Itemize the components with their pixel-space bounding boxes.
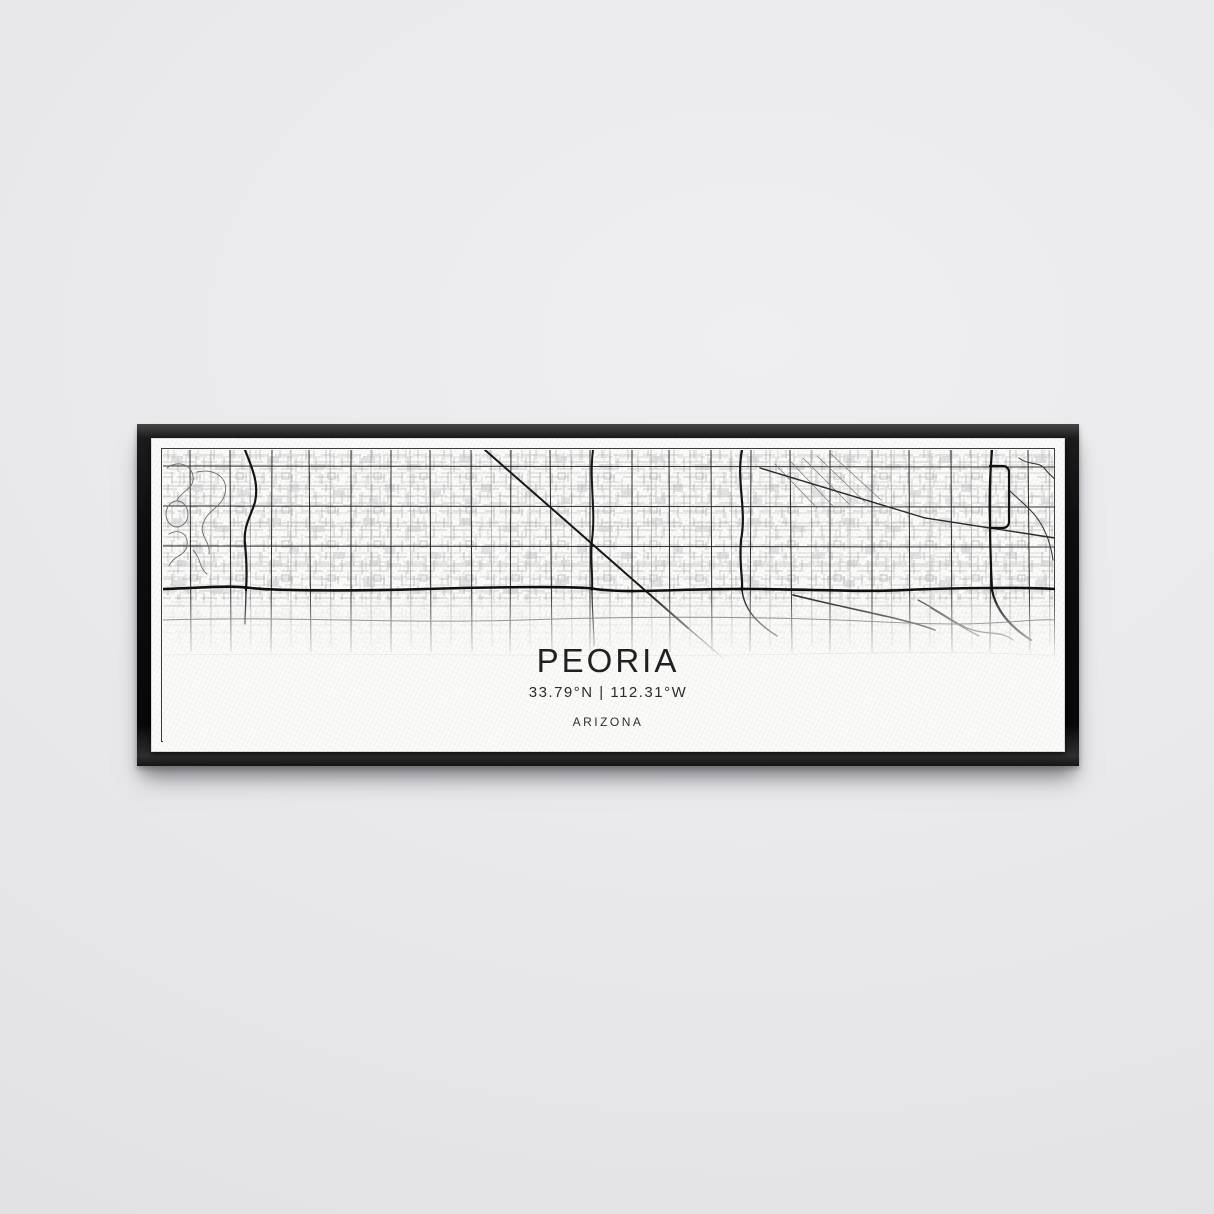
canvas-print: PEORIA 33.79°N | 112.31°W ARIZONA bbox=[151, 438, 1065, 752]
city-map-graphic bbox=[163, 450, 1055, 742]
fade-overlay bbox=[163, 592, 1055, 742]
gallery-wall: PEORIA 33.79°N | 112.31°W ARIZONA bbox=[0, 0, 1214, 1214]
artwork-frame: PEORIA 33.79°N | 112.31°W ARIZONA bbox=[137, 424, 1079, 766]
map-inner-border bbox=[161, 448, 1055, 742]
